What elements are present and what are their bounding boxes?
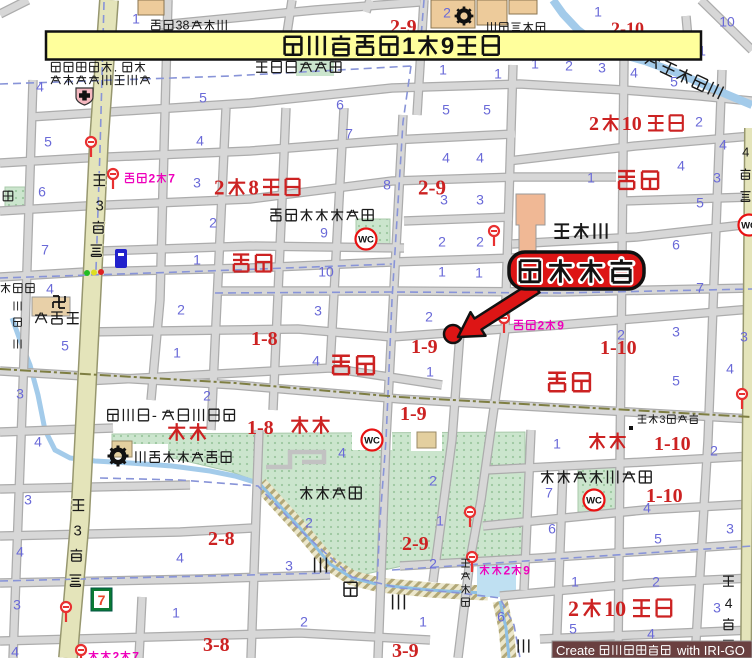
svg-text:5: 5 [670, 74, 678, 90]
svg-text:6: 6 [497, 609, 505, 625]
svg-text:2: 2 [429, 473, 437, 489]
svg-text:3: 3 [659, 414, 665, 426]
svg-text:2: 2 [438, 234, 446, 250]
svg-text:2: 2 [113, 649, 120, 658]
svg-text:2: 2 [617, 327, 625, 343]
svg-text:3: 3 [24, 492, 32, 508]
svg-text:5: 5 [696, 195, 704, 211]
svg-text:2: 2 [214, 176, 225, 200]
svg-text:5: 5 [483, 102, 491, 118]
svg-text:4: 4 [196, 133, 204, 149]
svg-text:2: 2 [177, 302, 185, 318]
svg-text:2: 2 [589, 113, 599, 135]
svg-text:3: 3 [314, 303, 322, 319]
svg-text:3: 3 [672, 324, 680, 340]
svg-text:10: 10 [622, 113, 642, 135]
svg-text:1: 1 [172, 605, 180, 621]
svg-text:1: 1 [553, 436, 561, 452]
svg-text:WC: WC [741, 220, 752, 231]
svg-text:WC: WC [358, 234, 374, 245]
svg-text:-: - [152, 407, 157, 424]
svg-text:3: 3 [96, 197, 104, 214]
svg-text:4: 4 [643, 500, 651, 516]
svg-text:4: 4 [34, 434, 42, 450]
svg-text:2-8: 2-8 [208, 528, 235, 550]
svg-text:5: 5 [199, 90, 207, 106]
svg-text:9: 9 [523, 563, 530, 577]
svg-text:4: 4 [36, 79, 44, 95]
svg-text:4: 4 [677, 158, 685, 174]
svg-text:1: 1 [132, 11, 140, 27]
svg-text:4: 4 [725, 595, 733, 611]
svg-text:with IRI-GO: with IRI-GO [676, 643, 745, 658]
svg-text:WC: WC [364, 435, 380, 446]
svg-text:3: 3 [598, 60, 606, 76]
svg-text:4: 4 [476, 150, 484, 166]
svg-text:4: 4 [726, 361, 734, 377]
svg-text:2: 2 [203, 388, 211, 404]
svg-text:7: 7 [345, 126, 353, 142]
svg-text:3: 3 [713, 170, 721, 186]
svg-text:1: 1 [402, 33, 415, 60]
svg-text:1: 1 [494, 66, 502, 82]
svg-text:9: 9 [320, 225, 328, 241]
svg-text:5: 5 [654, 531, 662, 547]
svg-text:3: 3 [440, 192, 448, 208]
svg-text:5: 5 [61, 338, 69, 354]
svg-text:6: 6 [672, 237, 680, 253]
svg-text:3: 3 [726, 521, 734, 537]
svg-text:10: 10 [318, 264, 334, 280]
svg-text:1: 1 [193, 252, 201, 268]
svg-text:2-9: 2-9 [402, 533, 429, 555]
svg-text:1: 1 [439, 62, 447, 78]
svg-text:2: 2 [443, 5, 451, 21]
svg-text:3: 3 [476, 192, 484, 208]
svg-text:2: 2 [652, 574, 660, 590]
svg-text:2: 2 [149, 171, 156, 185]
svg-text:2: 2 [504, 563, 511, 577]
svg-text:5: 5 [672, 373, 680, 389]
svg-text:7: 7 [545, 485, 553, 501]
svg-text:7: 7 [41, 242, 49, 258]
svg-text:7: 7 [168, 171, 175, 185]
svg-text:5: 5 [44, 134, 52, 150]
svg-text:1: 1 [594, 4, 602, 20]
svg-text:1: 1 [571, 574, 579, 590]
svg-text:1: 1 [438, 264, 446, 280]
svg-text:7: 7 [132, 649, 139, 658]
svg-text:3: 3 [713, 600, 721, 616]
svg-text:4: 4 [11, 644, 19, 658]
svg-text:4: 4 [442, 150, 450, 166]
svg-text:1-10: 1-10 [646, 485, 683, 507]
svg-text:1: 1 [475, 265, 483, 281]
svg-text:3: 3 [193, 175, 201, 191]
svg-text:4: 4 [742, 145, 749, 160]
svg-text:10: 10 [604, 596, 626, 621]
svg-text:8: 8 [248, 176, 259, 200]
svg-text:2: 2 [300, 614, 308, 630]
svg-text:2: 2 [476, 234, 484, 250]
svg-text:4: 4 [719, 137, 727, 153]
svg-text:1: 1 [419, 614, 427, 630]
svg-text:2: 2 [209, 215, 217, 231]
svg-text:.: . [114, 61, 117, 75]
svg-text:4: 4 [176, 550, 184, 566]
svg-text:7: 7 [98, 592, 106, 608]
svg-text:1-8: 1-8 [247, 417, 274, 439]
svg-text:2: 2 [538, 318, 545, 332]
svg-text:5: 5 [569, 621, 577, 637]
svg-text:9: 9 [557, 318, 564, 332]
svg-text:1-8: 1-8 [251, 328, 278, 350]
svg-text:1: 1 [436, 513, 444, 529]
svg-text:6: 6 [38, 184, 46, 200]
svg-text:3-8: 3-8 [203, 634, 230, 656]
svg-text:1: 1 [173, 345, 181, 361]
svg-text:3-9: 3-9 [392, 640, 419, 658]
svg-text:2: 2 [568, 596, 579, 621]
svg-text:1: 1 [426, 364, 434, 380]
svg-text:2: 2 [429, 556, 437, 572]
svg-text:2: 2 [710, 443, 718, 459]
svg-text:WC: WC [586, 495, 602, 506]
svg-text:1-9: 1-9 [400, 403, 427, 425]
svg-text:5: 5 [442, 102, 450, 118]
svg-text:8: 8 [383, 177, 391, 193]
svg-text:Create: Create [556, 643, 595, 658]
svg-text:3: 3 [13, 597, 21, 613]
svg-text:4: 4 [312, 353, 320, 369]
svg-text:4: 4 [16, 544, 24, 560]
svg-text:1-10: 1-10 [654, 433, 691, 455]
svg-text:1: 1 [587, 170, 595, 186]
svg-text:4: 4 [338, 445, 346, 461]
svg-text:3: 3 [74, 522, 82, 539]
svg-text:7: 7 [696, 280, 704, 296]
svg-text:2: 2 [305, 515, 313, 531]
svg-text:6: 6 [548, 521, 556, 537]
svg-text:1-9: 1-9 [411, 336, 438, 358]
svg-text:9: 9 [441, 33, 454, 60]
svg-text:3: 3 [16, 386, 24, 402]
svg-text:10: 10 [719, 14, 735, 30]
svg-text:2: 2 [425, 309, 433, 325]
svg-text:3: 3 [740, 329, 748, 345]
svg-text:2: 2 [695, 114, 703, 130]
svg-text:4: 4 [46, 281, 54, 297]
svg-text:3: 3 [285, 558, 293, 574]
svg-text:4: 4 [630, 65, 638, 81]
svg-text:4: 4 [647, 626, 655, 642]
svg-text:6: 6 [336, 97, 344, 113]
